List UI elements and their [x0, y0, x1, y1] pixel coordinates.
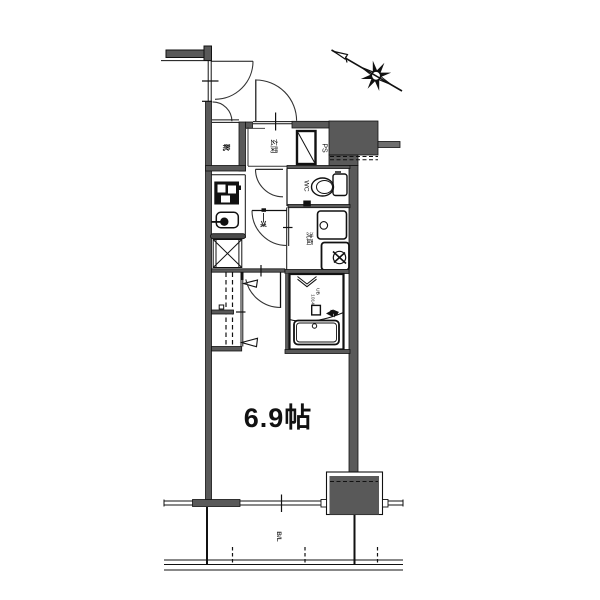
svg-text:WC: WC: [303, 180, 310, 191]
svg-text:B/L: B/L: [275, 531, 282, 541]
svg-text:洗面: 洗面: [306, 232, 315, 246]
svg-text:1014: 1014: [310, 294, 316, 305]
svg-text:靴: 靴: [222, 144, 231, 151]
svg-text:玄関: 玄関: [270, 139, 279, 153]
svg-text:PS: PS: [321, 143, 328, 153]
svg-text:6.9帖: 6.9帖: [244, 403, 313, 433]
